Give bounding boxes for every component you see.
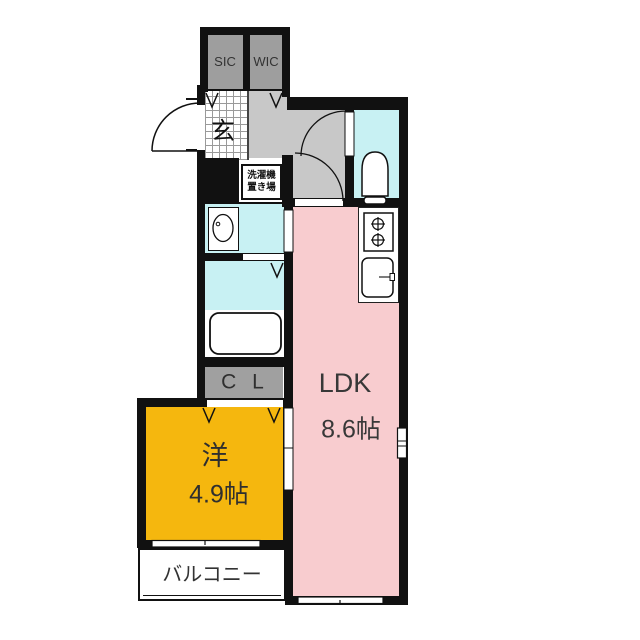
ldk-door [295, 153, 343, 206]
ldk-bottom-window [298, 597, 383, 604]
floorplan: 洗濯機 置き場 [0, 0, 640, 640]
label-sic: SIC [214, 55, 236, 69]
western-sliding-door [284, 408, 293, 490]
label-ldk-size: 8.6帖 [321, 416, 381, 444]
toilet [362, 152, 388, 204]
entrance-door [152, 99, 200, 151]
kitchen-sink [362, 258, 395, 297]
washbasin [213, 215, 233, 242]
label-genkan: 玄 [211, 119, 235, 145]
label-balcony: バルコニー [162, 564, 262, 586]
bathroom-door [243, 254, 284, 277]
washroom-door [284, 210, 293, 252]
label-western-size: 4.9帖 [189, 481, 249, 509]
bathtub [210, 313, 281, 354]
toilet-door [301, 111, 354, 156]
label-cl: C L [221, 370, 269, 393]
stove-burners [364, 213, 393, 251]
fixtures-layer [0, 0, 640, 640]
ldk-side-window [398, 428, 407, 458]
western-window [152, 541, 260, 548]
label-ldk-name: LDK [319, 369, 372, 399]
label-western-name: 洋 [202, 442, 229, 472]
label-wic: WIC [253, 55, 278, 69]
